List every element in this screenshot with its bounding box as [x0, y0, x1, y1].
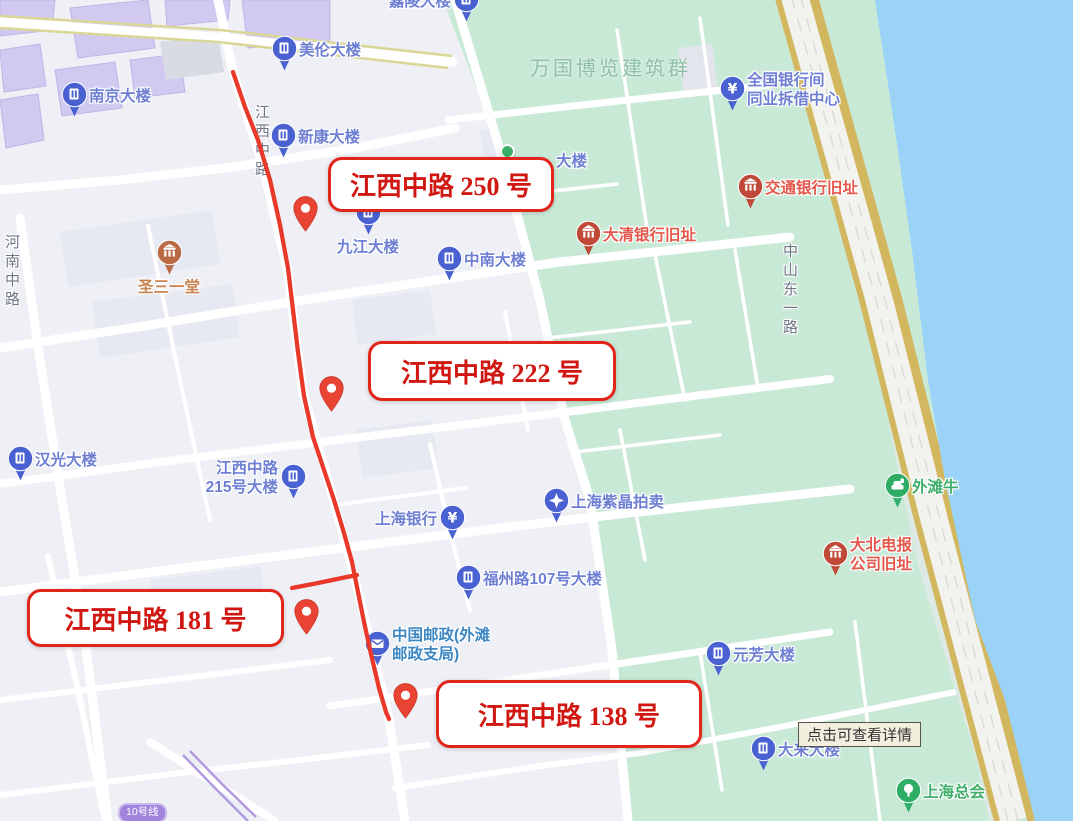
metro-line-10-badge: 10号线 — [118, 803, 167, 821]
click-for-details-tooltip[interactable]: 点击可查看详情 — [798, 722, 921, 747]
float-layer: 点击可查看详情 10号线 — [0, 0, 1073, 821]
map-canvas[interactable]: 河南中路 江西中路 中山东一路 万国博览建筑群 大楼 南京大楼美伦大楼嘉陵大楼新… — [0, 0, 1073, 821]
